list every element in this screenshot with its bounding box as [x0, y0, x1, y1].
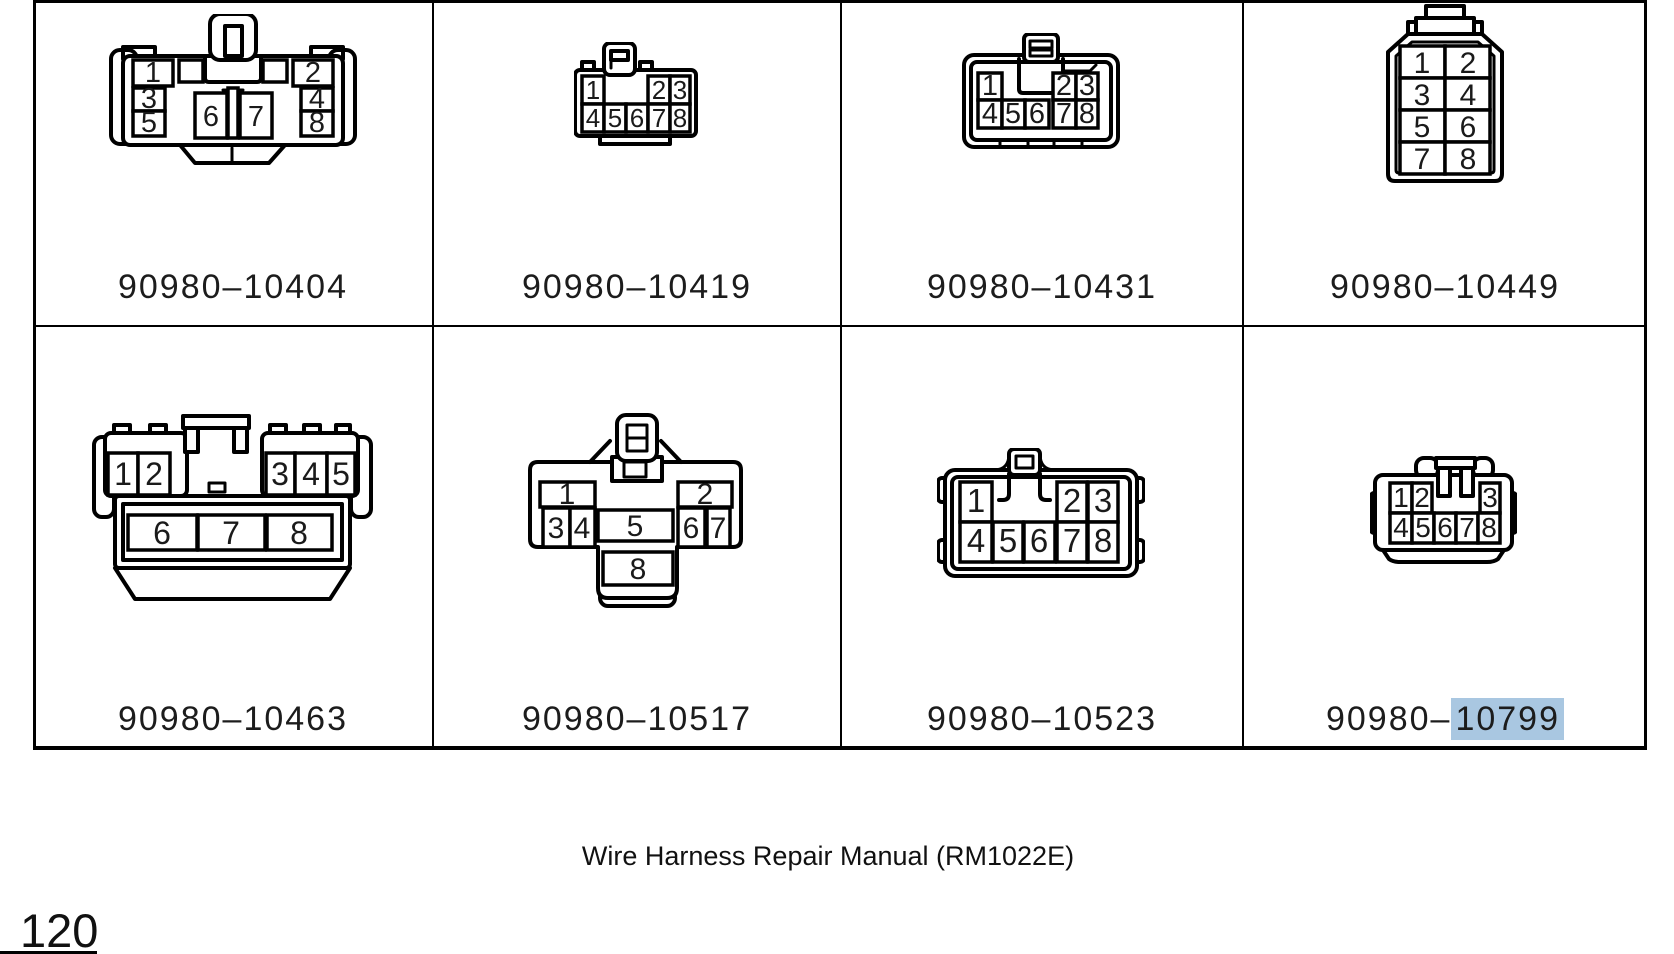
pin-number: 7 [710, 512, 727, 545]
pin-number: 6 [630, 103, 644, 133]
connector-diagram-10404: 1 3 5 2 4 8 6 7 [109, 14, 357, 166]
pin-number: 6 [1460, 111, 1477, 144]
manual-page: 1 3 5 2 4 8 6 7 1 2 3 4 5 6 7 8 [0, 0, 1674, 954]
part-number-prefix: 90980– [927, 268, 1052, 306]
part-number-label: 90980–10419 [477, 268, 797, 307]
pin-number: 3 [271, 456, 289, 492]
table-divider-col2 [840, 0, 842, 748]
part-number-prefix: 90980– [118, 268, 243, 306]
pin-number: 4 [982, 98, 998, 130]
part-number-label: 90980–10463 [73, 700, 393, 739]
pin-number: 5 [627, 510, 644, 543]
footer-caption: Wire Harness Repair Manual (RM1022E) [0, 841, 1656, 872]
pin-number: 1 [1393, 482, 1409, 513]
pin-number: 1 [967, 482, 985, 519]
pin-number: 7 [1459, 512, 1475, 543]
part-number-suffix: 10517 [647, 700, 752, 738]
pin-number: 8 [290, 515, 308, 551]
pin-number: 4 [302, 456, 320, 492]
pin-number: 2 [1414, 482, 1430, 513]
connector-diagram-10463: 1 2 3 4 5 6 7 8 [92, 413, 373, 605]
pin-number: 4 [1393, 512, 1409, 543]
latch-tab [210, 14, 256, 60]
pin-number: 6 [1437, 512, 1453, 543]
pin-number: 8 [630, 553, 647, 586]
pin-number: 2 [1460, 47, 1477, 80]
part-number-suffix: 10463 [243, 700, 348, 738]
table-divider-row [33, 325, 1647, 327]
latch-tab [1009, 449, 1040, 475]
connector-diagram-10431: 1 2 3 4 5 6 7 8 [962, 33, 1120, 149]
pin-number: 6 [153, 515, 171, 551]
pin-number: 3 [1094, 482, 1112, 519]
housing-skirt [115, 568, 350, 599]
pin-number: 3 [1482, 482, 1498, 513]
pin-number: 4 [967, 522, 985, 559]
latch-bar [1436, 458, 1475, 468]
part-number-suffix: 10404 [243, 268, 348, 306]
table-border-right [1644, 0, 1647, 750]
pin-number: 1 [559, 478, 576, 511]
pin-number: 5 [999, 522, 1017, 559]
part-number-suffix: 10523 [1052, 700, 1157, 738]
part-number-label: 90980–10404 [73, 268, 393, 307]
pin-number: 1 [586, 75, 600, 105]
pin-number: 5 [1414, 111, 1431, 144]
pin-number: 2 [1063, 482, 1081, 519]
latch-prong [1438, 468, 1450, 496]
connector-diagram-10419: 1 2 3 4 5 6 7 8 [574, 42, 698, 146]
part-number-label: 90980–10449 [1285, 268, 1605, 307]
part-number-label: 90980–10799 [1285, 700, 1605, 739]
page-number: 120 [20, 903, 98, 954]
part-number-suffix: 10431 [1052, 268, 1157, 306]
table-divider-col3 [1242, 0, 1244, 748]
pin-number: 7 [222, 515, 240, 551]
pin-number: 7 [652, 103, 666, 133]
pin-number: 4 [1460, 79, 1477, 112]
pin-number: 8 [1481, 512, 1497, 543]
part-number-prefix: 90980– [522, 268, 647, 306]
connector-diagram-10449: 1 2 3 4 5 6 7 8 [1384, 4, 1506, 184]
pin-number: 7 [1414, 143, 1431, 176]
part-number-label: 90980–10431 [882, 268, 1202, 307]
part-number-suffix: 10449 [1455, 268, 1560, 306]
connector-diagram-10523: 1 2 3 4 5 6 7 8 [937, 448, 1145, 578]
table-border-left [33, 0, 36, 750]
pin-number: 7 [248, 101, 264, 133]
pin-number: 6 [683, 512, 700, 545]
pin-number: 8 [1094, 522, 1112, 559]
pin-number: 8 [1460, 143, 1477, 176]
table-border-top [33, 0, 1647, 3]
pin-number: 6 [1029, 98, 1045, 130]
pin-number: 5 [608, 103, 622, 133]
latch-prong [1461, 468, 1473, 496]
pin-number: 2 [652, 75, 666, 105]
pin-number: 2 [697, 478, 714, 511]
pin-number: 2 [145, 456, 163, 492]
pin-number: 7 [1063, 522, 1081, 559]
pin-number: 5 [1005, 98, 1021, 130]
pin-number: 8 [1079, 98, 1095, 130]
pin-number: 8 [673, 103, 687, 133]
pin-number: 1 [114, 456, 132, 492]
pin-number: 3 [548, 512, 565, 545]
part-number-suffix: 10419 [647, 268, 752, 306]
pin-cell [179, 60, 203, 82]
pin-cell [263, 60, 287, 82]
pin-number: 4 [586, 103, 600, 133]
pin-number: 8 [309, 107, 325, 139]
part-number-prefix: 90980– [118, 700, 243, 738]
pin-number: 5 [332, 456, 350, 492]
part-number-label: 90980–10523 [882, 700, 1202, 739]
pin-number: 1 [1414, 47, 1431, 80]
table-border-bottom [33, 746, 1647, 750]
pin-number: 3 [673, 75, 687, 105]
pin-number: 7 [1056, 98, 1072, 130]
pin-number: 6 [203, 101, 219, 133]
pin-number: 4 [574, 512, 591, 545]
part-number-prefix: 90980– [522, 700, 647, 738]
connector-diagram-10799: 1 2 3 4 5 6 7 8 [1370, 456, 1517, 568]
pin-number: 5 [141, 107, 157, 139]
part-number-prefix: 90980– [1326, 700, 1451, 738]
connector-diagram-10517: 1 2 3 4 5 6 7 8 [528, 413, 743, 610]
latch-prong [185, 428, 198, 452]
pin-number: 5 [1415, 512, 1431, 543]
latch-bar [183, 416, 249, 428]
latch-prong [234, 428, 247, 452]
pin-number: 3 [1414, 79, 1431, 112]
part-number-prefix: 90980– [1330, 268, 1455, 306]
highlighted-part-suffix: 10799 [1451, 698, 1564, 740]
pin-number: 6 [1030, 522, 1048, 559]
table-divider-col1 [432, 0, 434, 748]
part-number-prefix: 90980– [927, 700, 1052, 738]
part-number-label: 90980–10517 [477, 700, 797, 739]
